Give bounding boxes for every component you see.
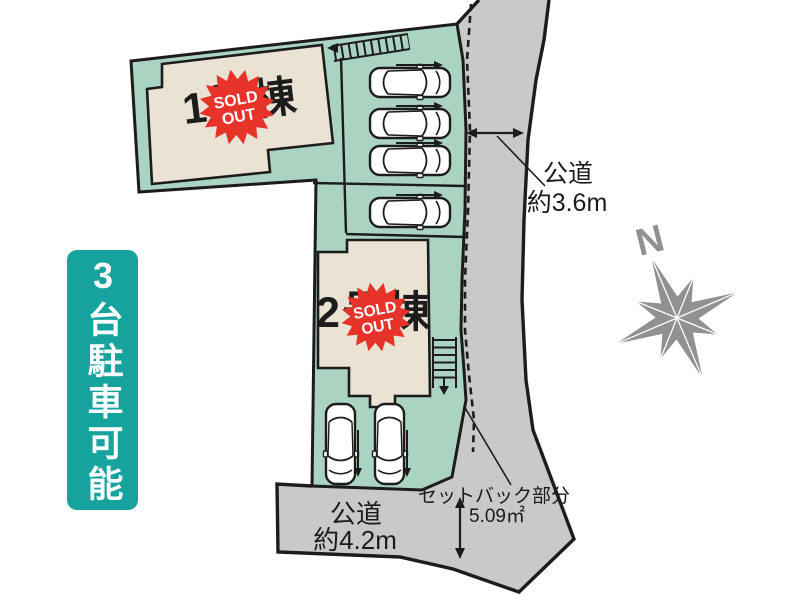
setback-area: 5.09㎡ xyxy=(469,504,525,527)
parking-banner-text: 3台駐車可能 xyxy=(85,255,121,506)
road-right-width: 約3.6m xyxy=(527,189,608,217)
parking-banner: 3台駐車可能 xyxy=(67,250,138,510)
compass-icon xyxy=(590,231,763,404)
setback-label: セットバック部分 xyxy=(418,485,570,507)
site-plan: 1号棟 2号棟 SOLD OUT xyxy=(0,0,800,600)
compass-n-label: N xyxy=(632,217,669,264)
road-bottom-width: 約4.2m xyxy=(313,525,397,555)
road-right-name: 公道 xyxy=(543,160,593,188)
